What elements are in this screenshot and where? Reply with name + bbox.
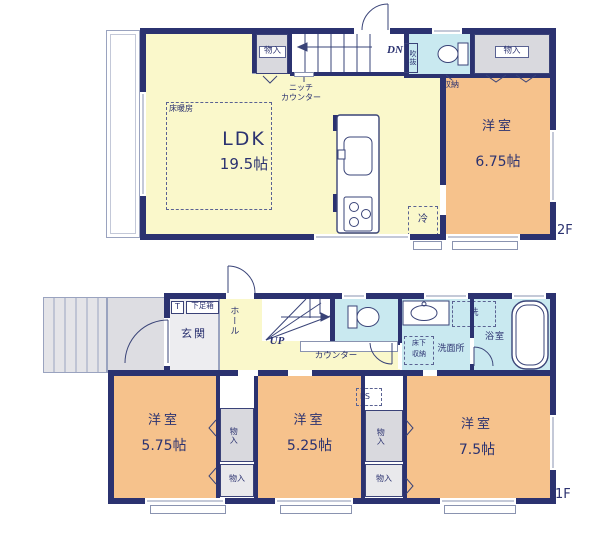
void-label: 吹抜 xyxy=(404,43,418,73)
closet-2f-right-label: 物入 xyxy=(495,46,529,58)
fridge-label: 冷 xyxy=(408,214,438,226)
window xyxy=(342,293,366,299)
window xyxy=(512,293,546,299)
door-opening xyxy=(440,185,446,215)
washroom-label: 洗面所 xyxy=(428,344,474,354)
wall xyxy=(288,34,292,74)
floor-1-tag: 1F xyxy=(555,488,571,503)
wall xyxy=(403,376,407,498)
bedroom-center-name: 洋室 xyxy=(260,414,359,429)
toilet-abbr-box: T xyxy=(171,301,184,314)
window xyxy=(550,415,556,470)
ldk-name: LDK xyxy=(196,129,292,151)
window xyxy=(550,130,556,202)
window xyxy=(145,498,225,504)
bathroom-label: 浴室 xyxy=(477,332,513,342)
pipe-space-label: PS xyxy=(360,392,370,401)
door-opening xyxy=(354,28,390,34)
counter-label: カウンター xyxy=(304,352,368,362)
window xyxy=(440,498,516,504)
bedroom-center-area: 5.25帖 xyxy=(260,438,359,454)
closet-2f-left-label: 物入 xyxy=(259,46,286,58)
wall xyxy=(254,376,258,498)
window-sill xyxy=(444,505,516,514)
wall xyxy=(330,299,335,343)
bedroom-west xyxy=(114,376,216,498)
storage-label: 収納 xyxy=(443,80,459,89)
window-sill xyxy=(150,505,226,514)
window-sill xyxy=(280,505,352,514)
toilet-room-1f xyxy=(335,299,398,341)
bedroom-east-area: 7.5帖 xyxy=(426,442,528,458)
window xyxy=(432,28,462,34)
bedroom-center xyxy=(258,376,361,498)
door-opening xyxy=(164,318,170,366)
niche-label-line1: ニッチ xyxy=(268,83,334,92)
closet-east-lower-label: 物入 xyxy=(367,474,401,483)
door-opening xyxy=(398,345,402,369)
wall xyxy=(108,370,170,376)
window xyxy=(446,234,520,240)
wall xyxy=(398,299,402,343)
floor-heating-label: 床暖房 xyxy=(169,104,193,113)
window-sill xyxy=(413,241,442,250)
closet-west-upper-label: 物入 xyxy=(229,417,238,455)
ldk-area: 19.5帖 xyxy=(196,156,292,173)
door-opening xyxy=(423,370,437,376)
bedroom-2f-name: 洋室 xyxy=(452,120,544,135)
laundry-label: 洗 xyxy=(462,308,486,318)
porch xyxy=(107,297,165,373)
window-sill xyxy=(452,241,518,250)
window xyxy=(424,293,468,299)
stairs-up-label: UP xyxy=(262,335,292,348)
bedroom-2f-area: 6.75帖 xyxy=(452,154,544,170)
bedroom-west-area: 5.75帖 xyxy=(116,438,212,454)
floor-plan-canvas: LDK 19.5帖 洋室 6.75帖 物入 物入 DN 吹抜 収納 ニッチ カウ… xyxy=(0,0,600,560)
balcony-2f-inner-line xyxy=(110,34,136,234)
kitchen-wall-stub xyxy=(333,194,338,212)
bedroom-east-name: 洋室 xyxy=(426,418,528,433)
closet-west-lower-label: 物入 xyxy=(221,474,253,483)
kitchen-wall-stub xyxy=(333,115,338,131)
window xyxy=(314,234,410,240)
floor-2-tag: 2F xyxy=(557,224,573,239)
entrance-label: 玄関 xyxy=(170,328,218,341)
bedroom-east xyxy=(407,376,550,498)
shoe-box-label: 下足箱 xyxy=(186,301,219,314)
door-opening xyxy=(226,293,254,299)
wall xyxy=(404,74,550,78)
bedroom-west-name: 洋室 xyxy=(116,414,212,429)
window xyxy=(275,498,353,504)
wall xyxy=(108,370,114,504)
niche-label-line2: カウンター xyxy=(262,93,340,102)
wall xyxy=(550,293,556,504)
entrance-steps xyxy=(43,297,107,373)
toilet-room-2f xyxy=(409,34,470,74)
door-opening xyxy=(238,370,258,376)
wall xyxy=(164,370,556,376)
closet-east-upper-label: 物入 xyxy=(376,418,385,456)
door-opening xyxy=(288,370,312,376)
niche-counter xyxy=(294,72,314,77)
hall-label: ホール xyxy=(228,306,238,364)
window xyxy=(140,92,146,196)
